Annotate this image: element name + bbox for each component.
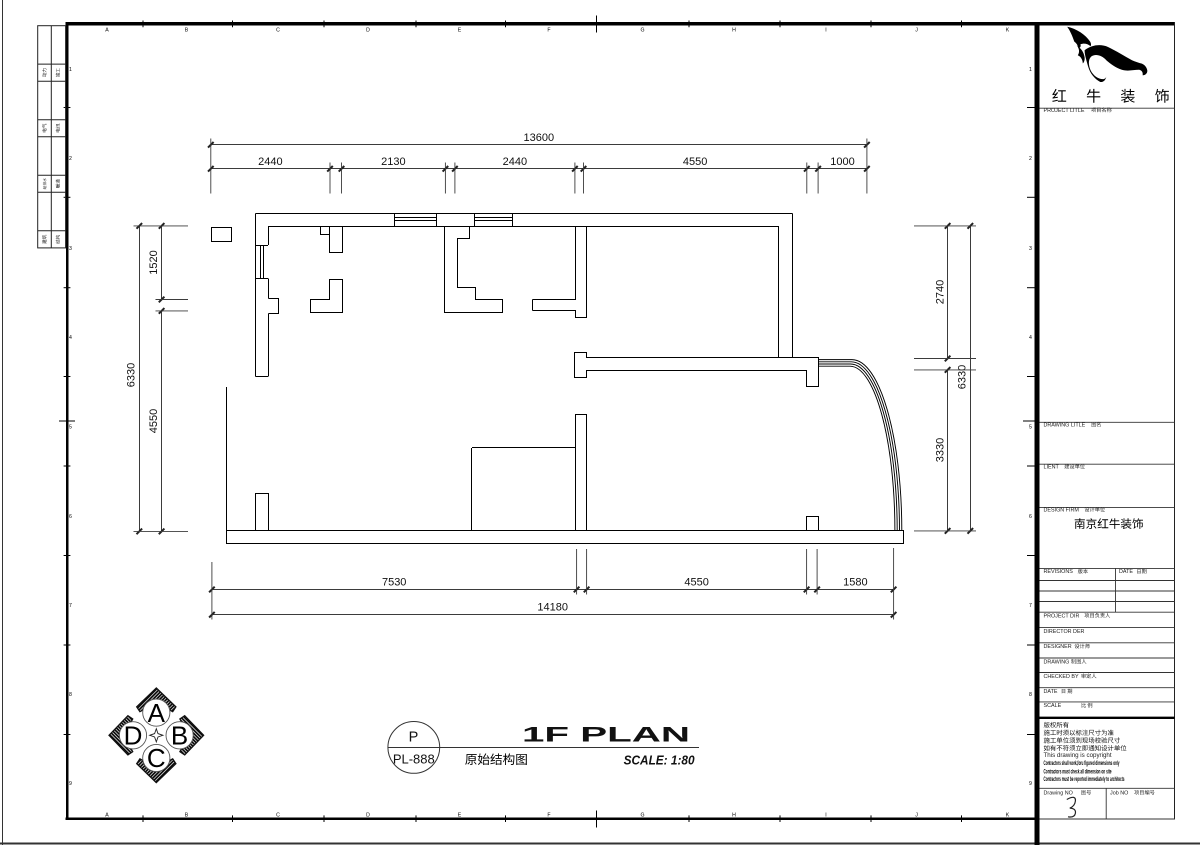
svg-text:SCALE: SCALE	[1044, 703, 1062, 709]
svg-text:8: 8	[69, 692, 72, 698]
svg-text:3: 3	[1029, 246, 1032, 252]
svg-text:1000: 1000	[830, 156, 854, 168]
svg-text:Drawing NO: Drawing NO	[1044, 790, 1073, 796]
svg-text:1520: 1520	[148, 250, 160, 274]
svg-text:DRAWING LITLE: DRAWING LITLE	[1044, 422, 1086, 428]
svg-text:I: I	[825, 28, 826, 34]
svg-text:D: D	[124, 721, 143, 751]
svg-text:2: 2	[1029, 156, 1032, 162]
svg-text:DESIGN FIRM: DESIGN FIRM	[1044, 507, 1080, 513]
svg-text:Contractors must be reported i: Contractors must be reported immediately…	[1044, 776, 1125, 783]
svg-text:I: I	[825, 813, 826, 819]
svg-text:PROJECT DIR: PROJECT DIR	[1044, 613, 1080, 619]
svg-text:K: K	[1006, 813, 1010, 819]
svg-text:D: D	[366, 813, 370, 819]
svg-text:2: 2	[69, 156, 72, 162]
svg-text:DRAWING: DRAWING	[1044, 659, 1070, 665]
svg-text:8: 8	[1029, 692, 1032, 698]
svg-text:2740: 2740	[935, 280, 947, 304]
svg-text:1: 1	[69, 67, 72, 73]
svg-text:5: 5	[1029, 425, 1032, 431]
svg-text:B: B	[171, 721, 188, 751]
svg-text:3: 3	[69, 246, 72, 252]
svg-text:D: D	[366, 28, 370, 34]
svg-text:1F PLAN: 1F PLAN	[522, 723, 690, 747]
svg-text:7530: 7530	[382, 577, 406, 589]
svg-text:REVISIONS: REVISIONS	[1044, 569, 1074, 575]
svg-text:J: J	[915, 813, 918, 819]
svg-text:K: K	[1006, 28, 1010, 34]
svg-text:2130: 2130	[381, 156, 405, 168]
svg-text:SCALE: 1:80: SCALE: 1:80	[624, 753, 696, 768]
svg-text:5: 5	[69, 425, 72, 431]
svg-text:2440: 2440	[503, 156, 527, 168]
svg-text:A: A	[148, 698, 166, 728]
svg-text:LIENT: LIENT	[1044, 464, 1060, 470]
svg-text:PL-888: PL-888	[393, 752, 435, 767]
svg-text:DESIGNER: DESIGNER	[1044, 644, 1072, 650]
svg-text:3330: 3330	[935, 438, 947, 462]
svg-text:CHECKED BY: CHECKED BY	[1044, 674, 1079, 680]
svg-text:A: A	[105, 813, 109, 819]
svg-text:4550: 4550	[684, 577, 708, 589]
svg-text:1580: 1580	[843, 577, 867, 589]
svg-text:4: 4	[69, 335, 72, 341]
svg-text:G: G	[640, 28, 644, 34]
svg-text:2440: 2440	[258, 156, 282, 168]
svg-text:F: F	[547, 813, 550, 819]
svg-text:DATE: DATE	[1119, 569, 1133, 575]
svg-text:H: H	[732, 28, 736, 34]
svg-text:13600: 13600	[524, 132, 555, 144]
svg-text:P: P	[409, 730, 419, 746]
svg-text:B: B	[185, 28, 189, 34]
svg-text:6330: 6330	[957, 365, 969, 389]
svg-text:9: 9	[1029, 781, 1032, 787]
svg-text:6330: 6330	[126, 363, 138, 387]
svg-text:G: G	[640, 813, 644, 819]
svg-text:B: B	[185, 813, 189, 819]
svg-text:H: H	[732, 813, 736, 819]
svg-text:PROJECT LITLE: PROJECT LITLE	[1044, 108, 1085, 114]
svg-text:1: 1	[1029, 67, 1032, 73]
svg-text:This drawing is copyright: This drawing is copyright	[1044, 752, 1112, 759]
svg-text:9: 9	[69, 781, 72, 787]
svg-text:4550: 4550	[148, 409, 160, 433]
svg-text:14180: 14180	[537, 602, 568, 614]
svg-text:4: 4	[1029, 335, 1032, 341]
svg-text:Contractors shall work,foru fi: Contractors shall work,foru figured dime…	[1044, 760, 1120, 767]
svg-text:4550: 4550	[683, 156, 707, 168]
svg-text:Job NO: Job NO	[1110, 790, 1128, 796]
svg-text:7: 7	[69, 603, 72, 609]
svg-text:C: C	[276, 813, 280, 819]
svg-text:J: J	[915, 28, 918, 34]
svg-text:6: 6	[69, 514, 72, 520]
svg-text:E: E	[458, 28, 462, 34]
svg-text:F: F	[547, 28, 550, 34]
svg-text:DATE: DATE	[1044, 689, 1058, 695]
svg-text:6: 6	[1029, 514, 1032, 520]
svg-text:E: E	[458, 813, 462, 819]
svg-text:A: A	[105, 28, 109, 34]
svg-text:C: C	[276, 28, 280, 34]
svg-text:DIRECTOR DER: DIRECTOR DER	[1044, 629, 1085, 635]
svg-text:C: C	[147, 743, 166, 773]
svg-text:Contractors must check all dim: Contractors must check all dimension on …	[1044, 769, 1112, 776]
svg-text:7: 7	[1029, 603, 1032, 609]
